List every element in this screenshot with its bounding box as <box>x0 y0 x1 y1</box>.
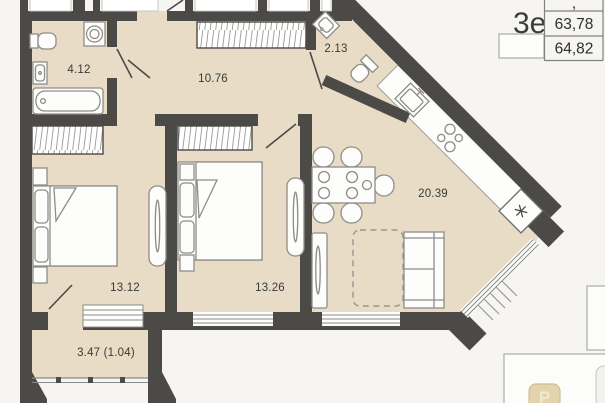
chair <box>313 203 334 223</box>
washing-machine-icon <box>84 22 105 46</box>
room-label-balcony: 3.47 (1.04) <box>77 347 135 359</box>
wall-between-bedrooms <box>165 126 177 312</box>
window-balcony-sill <box>83 305 143 327</box>
room-label-bathroom: 4.12 <box>67 64 90 76</box>
area-value-total: 64,82 <box>555 41 594 58</box>
floor-plan-page: 4.12 10.76 2.13 20.39 13.12 13.26 3.47 (… <box>0 0 605 403</box>
chair <box>341 203 362 223</box>
bed-double <box>33 186 117 266</box>
toilet-icon <box>30 33 56 49</box>
chair <box>374 175 394 196</box>
neighbor-fragment <box>596 366 605 403</box>
nightstand <box>180 164 194 180</box>
window-bedroom2 <box>193 312 273 326</box>
pillow <box>35 190 48 223</box>
area-value-partial: , <box>572 0 576 12</box>
neighbor-fragment <box>587 286 605 350</box>
room-label-bedroom-1: 13.12 <box>110 282 140 294</box>
cabinet <box>404 232 444 308</box>
bathtub-icon <box>33 88 103 114</box>
room-label-wc: 2.13 <box>324 43 347 55</box>
tv-stand <box>312 233 327 308</box>
window-living <box>322 312 400 326</box>
bed-double <box>178 162 262 271</box>
area-value-living: 63,78 <box>555 16 594 33</box>
plate <box>363 181 372 190</box>
room-label-hallway: 10.76 <box>198 73 228 85</box>
watermark-letter: Р <box>539 388 550 403</box>
nightstand <box>33 168 47 185</box>
chair <box>341 147 362 167</box>
hallway-wardrobe <box>197 22 306 48</box>
nightstand <box>180 255 194 271</box>
wall-balcony-right <box>148 330 162 377</box>
plate <box>347 172 358 183</box>
nightstand <box>33 267 47 283</box>
wash-basin-icon <box>33 62 47 84</box>
floor-plan-svg: 4.12 10.76 2.13 20.39 13.12 13.26 3.47 (… <box>0 0 605 403</box>
pillow <box>180 221 194 253</box>
bedroom2-wardrobe <box>178 126 252 150</box>
title-cell-empty <box>499 34 544 58</box>
wall-top-left <box>20 11 137 21</box>
chair <box>313 147 334 167</box>
pillow <box>180 183 194 217</box>
plate <box>347 188 358 199</box>
plate <box>319 172 330 183</box>
bedroom1-wardrobe <box>32 126 103 154</box>
room-label-living-kitchen: 20.39 <box>418 188 448 200</box>
pillow <box>35 227 48 262</box>
plate <box>319 188 330 199</box>
brand-watermark: Р <box>529 384 560 403</box>
room-label-bedroom-2: 13.26 <box>255 282 285 294</box>
